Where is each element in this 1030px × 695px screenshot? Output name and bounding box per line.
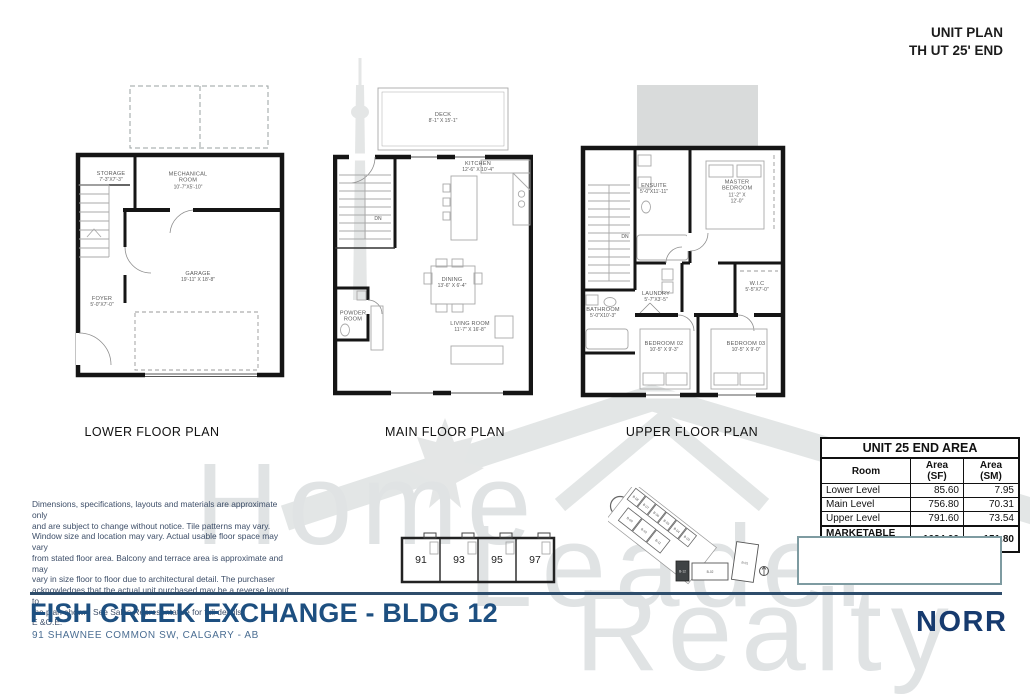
row-sm: 7.95 <box>964 484 1020 498</box>
main-plan-title: MAIN FLOOR PLAN <box>385 425 505 439</box>
footer-divider-rule <box>30 592 1002 595</box>
floorplan-sheet: { "header": {"line1": "UNIT PLAN", "line… <box>0 0 1030 666</box>
unit-number: 95 <box>491 554 503 566</box>
project-address: 91 SHAWNEE COMMON SW, CALGARY - AB <box>32 630 259 641</box>
building-unit-strip: 91 93 95 97 <box>398 526 560 590</box>
room-name: MECHANICAL ROOM <box>168 172 208 185</box>
row-sf: 791.60 <box>911 512 964 527</box>
room-label-laundry: LAUNDRY 5'-7"X3'-5" <box>642 291 670 303</box>
row-sm: 73.54 <box>964 512 1020 527</box>
main-floor-plan: DECK 8'-1" X 15'-1" KITCHEN 12'-6" X 10'… <box>333 78 533 403</box>
room-dims: 10'-7"X5'-10" <box>168 184 208 190</box>
room-label-garage: GARAGE 19'-11" X 18'-8" <box>181 271 215 283</box>
unit-number: 97 <box>529 554 541 566</box>
room-label-deck: DECK 8'-1" X 15'-1" <box>429 112 458 124</box>
project-title: FISH CREEK EXCHANGE - BLDG 12 <box>30 598 498 629</box>
norr-logo: NORR <box>916 606 1007 639</box>
room-dims: 5'-0"X11'-11" <box>640 189 668 195</box>
room-label-kitchen: KITCHEN 12'-6" X 10'-4" <box>462 161 494 173</box>
table-row: Main Level 756.80 70.31 <box>821 498 1019 512</box>
room-label-master-bedroom: MASTER BEDROOM 11'-2" X 12'-0" <box>722 180 752 205</box>
room-label-living-room: LIVING ROOM 11'-7" X 16'-8" <box>450 321 490 333</box>
lower-plan-title: LOWER FLOOR PLAN <box>85 425 220 439</box>
row-room: Upper Level <box>821 512 911 527</box>
stairs-dn-label: DN <box>621 234 628 240</box>
room-name: MASTER BEDROOM <box>722 180 752 193</box>
room-dims: 5'-0"X7'-0" <box>90 302 113 308</box>
lower-floor-plan: STORAGE 7'-3"X7'-3" MECHANICAL ROOM 10'-… <box>75 85 285 380</box>
room-label-wic: W.I.C 5'-5"X7'-0" <box>745 281 768 293</box>
room-label-bedroom-03: BEDROOM 03 10'-5" X 9'-0" <box>727 341 766 353</box>
table-row: Lower Level 85.60 7.95 <box>821 484 1019 498</box>
upper-plan-title: UPPER FLOOR PLAN <box>626 425 758 439</box>
lower-stairs <box>79 185 109 257</box>
room-dims: 8'-1" X 15'-1" <box>429 118 458 124</box>
site-building-label: B-12 <box>679 570 686 574</box>
row-sm: 70.31 <box>964 498 1020 512</box>
upper-floor-plan: ENSUITE 5'-0"X11'-11" MASTER BEDROOM 11'… <box>578 85 788 405</box>
room-dims: 11'-7" X 16'-8" <box>450 327 490 333</box>
room-label-powder-room: POWDER ROOM <box>339 311 367 324</box>
room-name: POWDER ROOM <box>339 311 367 324</box>
room-label-ensuite: ENSUITE 5'-0"X11'-11" <box>640 183 668 195</box>
area-table-title: UNIT 25 END AREA <box>821 438 1019 458</box>
room-dims: 11'-2" X 12'-0" <box>722 192 752 204</box>
unit-number: 91 <box>415 554 427 566</box>
row-sf: 756.80 <box>911 498 964 512</box>
main-stairs <box>339 175 391 239</box>
lower-floor-plan-drawing <box>75 85 285 380</box>
main-floor-plan-drawing <box>333 78 533 403</box>
col-header-room: Room <box>821 458 911 484</box>
room-dims: 5'-7"X3'-5" <box>642 297 670 303</box>
col-header-area-sf: Area (SF) <box>911 458 964 484</box>
table-row: Upper Level 791.60 73.54 <box>821 512 1019 527</box>
site-key-plan-drawing: B-08 B-07 B-06 B-05 B-04 B-03 B-09 B-10 … <box>608 487 772 592</box>
room-label-dining: DINING 13'-6" X 6'-4" <box>438 277 467 289</box>
room-dims: 10'-5" X 9'-0" <box>727 347 766 353</box>
unit-plan-line2: TH UT 25' END <box>909 42 1003 60</box>
site-key-plan: B-08 B-07 B-06 B-05 B-04 B-03 B-09 B-10 … <box>608 487 772 592</box>
site-building-b01: B-01 <box>731 542 758 583</box>
north-arrow-icon <box>760 567 769 576</box>
empty-note-box <box>797 536 1002 585</box>
unit-plan-header: UNIT PLAN TH UT 25' END <box>909 24 1003 59</box>
stairs-dn-label: DN <box>374 216 381 222</box>
unit-number: 93 <box>453 554 465 566</box>
room-dims: 5'-0"X10'-3" <box>586 313 620 319</box>
room-label-mechanical: MECHANICAL ROOM 10'-7"X5'-10" <box>168 172 208 191</box>
unit-plan-line1: UNIT PLAN <box>909 24 1003 42</box>
row-room: Main Level <box>821 498 911 512</box>
room-dims: 13'-6" X 6'-4" <box>438 283 467 289</box>
room-label-foyer: FOYER 5'-0"X7'-0" <box>90 296 113 308</box>
upper-floor-plan-drawing <box>578 85 788 405</box>
col-header-area-sm: Area (SM) <box>964 458 1020 484</box>
room-dims: 12'-6" X 10'-4" <box>462 167 494 173</box>
room-dims: 10'-5" X 9'-3" <box>645 347 684 353</box>
room-label-bathroom: BATHROOM 5'-0"X10'-3" <box>586 307 620 319</box>
room-dims: 7'-3"X7'-3" <box>97 177 126 183</box>
room-dims: 19'-11" X 18'-8" <box>181 277 215 283</box>
room-label-storage: STORAGE 7'-3"X7'-3" <box>97 171 126 183</box>
row-room: Lower Level <box>821 484 911 498</box>
room-label-bedroom-02: BEDROOM 02 10'-5" X 9'-3" <box>645 341 684 353</box>
room-dims: 5'-5"X7'-0" <box>745 287 768 293</box>
row-sf: 85.60 <box>911 484 964 498</box>
site-building-label: B-02 <box>707 570 714 574</box>
upper-stairs <box>588 185 630 281</box>
